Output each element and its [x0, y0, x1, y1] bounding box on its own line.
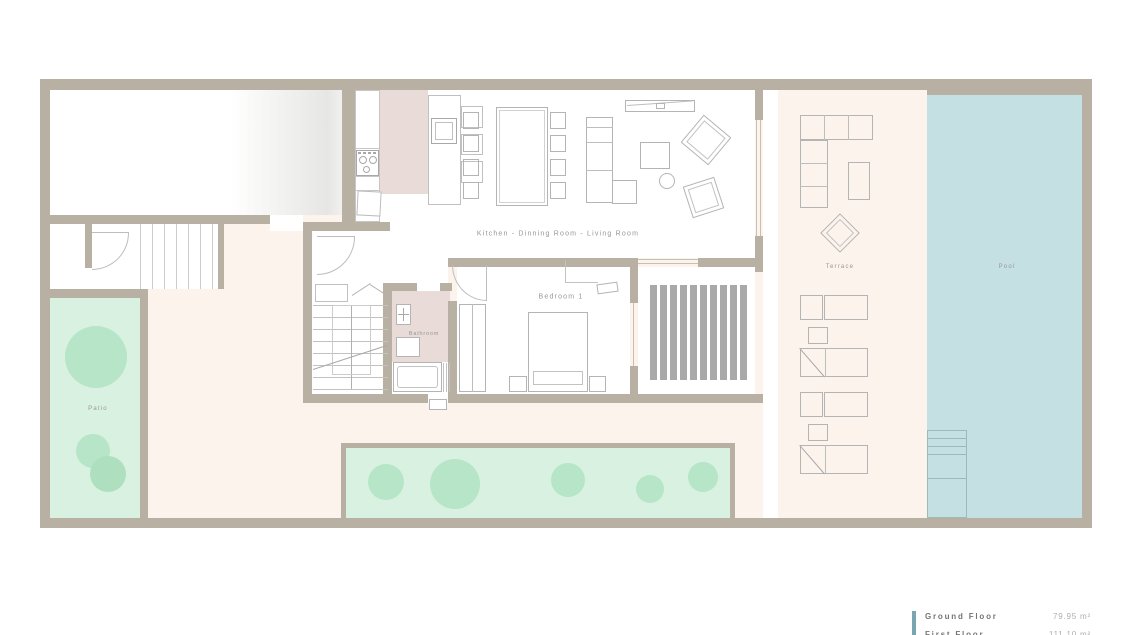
pool-step-line	[927, 446, 967, 447]
sun-lounger	[800, 295, 823, 320]
sliding-door-glass	[638, 259, 698, 260]
tree	[368, 464, 404, 500]
dining-chair	[550, 182, 566, 199]
window-veranda-west	[633, 303, 634, 366]
pool-steps	[927, 430, 967, 518]
dining-chair	[463, 135, 479, 152]
wall-pool-top	[927, 90, 1082, 95]
sofa-cushion-line	[586, 170, 613, 171]
bed-pillow	[533, 371, 583, 385]
wall-living-east-a	[755, 90, 763, 120]
dishwasher	[356, 190, 381, 216]
wall-patio-east	[140, 289, 148, 518]
nightstand	[589, 376, 606, 392]
wall-vestibule	[85, 224, 92, 268]
wall-outer-left	[40, 79, 50, 528]
sun-lounger	[824, 295, 868, 320]
shower-screen	[446, 363, 447, 392]
stove-controls	[368, 152, 371, 154]
nightstand	[509, 376, 527, 392]
window-living-east	[760, 120, 761, 236]
kitchen-island	[428, 95, 461, 205]
wall-house-south-a	[303, 394, 428, 403]
tree	[688, 462, 718, 492]
counter-divider	[355, 176, 380, 177]
walkway-strip	[763, 90, 778, 518]
side-table	[808, 424, 828, 441]
wall-outer-top	[40, 79, 1092, 90]
dining-chair	[463, 159, 479, 176]
wall-veranda-west-b	[630, 366, 638, 394]
outdoor-table	[848, 162, 870, 200]
wall-north-east-seg	[698, 258, 763, 267]
sofa-cushion-line	[824, 115, 825, 140]
sun-lounger	[824, 392, 868, 417]
kitchen-tile-floor	[380, 90, 428, 194]
tree	[65, 326, 127, 388]
coffee-table	[640, 142, 670, 169]
exterior-step	[212, 224, 213, 289]
tree	[551, 463, 585, 497]
stove-controls	[363, 152, 366, 154]
entry-porch-area	[50, 224, 224, 289]
outdoor-sofa	[800, 115, 873, 140]
room-label-patio: Patio	[88, 406, 108, 412]
toilet	[396, 337, 420, 357]
south-door-leaf	[429, 399, 447, 410]
sofa-cushion-line	[586, 127, 613, 128]
room-label-pool: Pool	[999, 264, 1016, 270]
exterior-step	[200, 224, 201, 289]
stove-controls	[358, 152, 361, 154]
wall-steps-east	[218, 224, 224, 289]
sun-lounger	[800, 445, 868, 474]
dining-chair	[463, 182, 479, 199]
room-label-bathroom: Bathroom	[409, 331, 439, 337]
sun-lounger	[800, 348, 868, 377]
stair-landing	[315, 284, 348, 302]
stair-tread	[313, 389, 388, 390]
shower-screen	[443, 363, 444, 392]
tree	[636, 475, 664, 503]
wall-house-south-b	[448, 394, 763, 403]
sliding-door-glass	[638, 263, 698, 264]
curtain-rail	[565, 282, 598, 283]
floor-plan-canvas: Kitchen - Dinning Room - Living Room Bed…	[0, 0, 1130, 635]
shower-screen	[449, 363, 450, 392]
counter-divider	[355, 148, 380, 149]
pool-step-line	[927, 438, 967, 439]
pool-step-line	[927, 454, 967, 455]
sofa-cushion-line	[586, 142, 613, 143]
front-door-opening	[270, 215, 303, 231]
garage-area	[50, 90, 342, 215]
wardrobe-divider	[472, 304, 473, 392]
wall-bath-north-a	[383, 283, 417, 291]
dining-table-inner	[499, 110, 545, 203]
lounger-divider	[825, 445, 826, 474]
legend-floor-name: Ground Floor	[925, 612, 998, 621]
sofa-cushion-line	[800, 186, 828, 187]
dining-chair	[550, 135, 566, 152]
stove-burner	[359, 156, 367, 164]
armchair-seat	[688, 182, 720, 214]
armchair-seat	[826, 219, 854, 247]
legend-row: First Floor 111.10 m²	[925, 630, 1091, 635]
wall-veranda-west-a	[630, 267, 638, 303]
legend-row: Ground Floor 79.95 m²	[925, 612, 1091, 621]
tree	[430, 459, 480, 509]
wall-outer-right	[1082, 79, 1092, 528]
sofa-cushion-line	[800, 163, 828, 164]
exterior-step	[140, 224, 141, 289]
sofa-cushion-line	[848, 115, 849, 140]
exterior-step	[188, 224, 189, 289]
outdoor-sofa	[800, 140, 828, 208]
sun-lounger	[800, 392, 823, 417]
room-label-terrace: Terrace	[826, 264, 854, 270]
wall-hall-north	[303, 222, 390, 231]
stove-burner	[369, 156, 377, 164]
sofa	[586, 117, 613, 203]
sink-cross	[403, 308, 404, 321]
room-label-bedroom: Bedroom 1	[538, 294, 583, 301]
tree	[90, 456, 126, 492]
area-legend: Ground Floor 79.95 m² First Floor 111.10…	[910, 608, 1095, 635]
oven-inner	[435, 122, 453, 140]
tv-box	[656, 103, 665, 109]
wall-living-east-b	[755, 236, 763, 272]
hall-passage-floor	[383, 222, 448, 291]
dining-chair	[550, 159, 566, 176]
lounger-divider	[825, 348, 826, 377]
dining-chair	[550, 112, 566, 129]
wall-entry-south	[50, 289, 148, 298]
exterior-step	[164, 224, 165, 289]
stove-controls	[373, 152, 376, 154]
curtain-rail	[565, 260, 566, 283]
side-table	[808, 327, 828, 344]
legend-accent-bar	[912, 611, 916, 635]
sofa-chaise	[612, 180, 637, 204]
wall-garage-kitchen	[342, 90, 355, 222]
wall-outer-bottom	[40, 518, 1092, 528]
stair-rail	[332, 305, 371, 375]
pouf	[659, 173, 675, 189]
wall-bath-north-b	[440, 283, 452, 291]
dining-chair	[463, 112, 479, 129]
legend-floor-name: First Floor	[925, 630, 984, 635]
pool-step-line	[927, 478, 967, 479]
exterior-step	[152, 224, 153, 289]
wall-garage-south	[50, 215, 270, 224]
wall-stairwell-west	[303, 231, 312, 403]
window-living-east	[756, 120, 757, 236]
stove-burner	[363, 166, 370, 173]
legend-floor-area: 79.95 m²	[1053, 612, 1091, 621]
exterior-step	[176, 224, 177, 289]
legend-floor-area: 111.10 m²	[1049, 630, 1091, 635]
bathtub-inner	[397, 366, 438, 388]
room-label-kitchen-living: Kitchen - Dinning Room - Living Room	[477, 231, 639, 238]
pergola-deck	[650, 285, 748, 380]
